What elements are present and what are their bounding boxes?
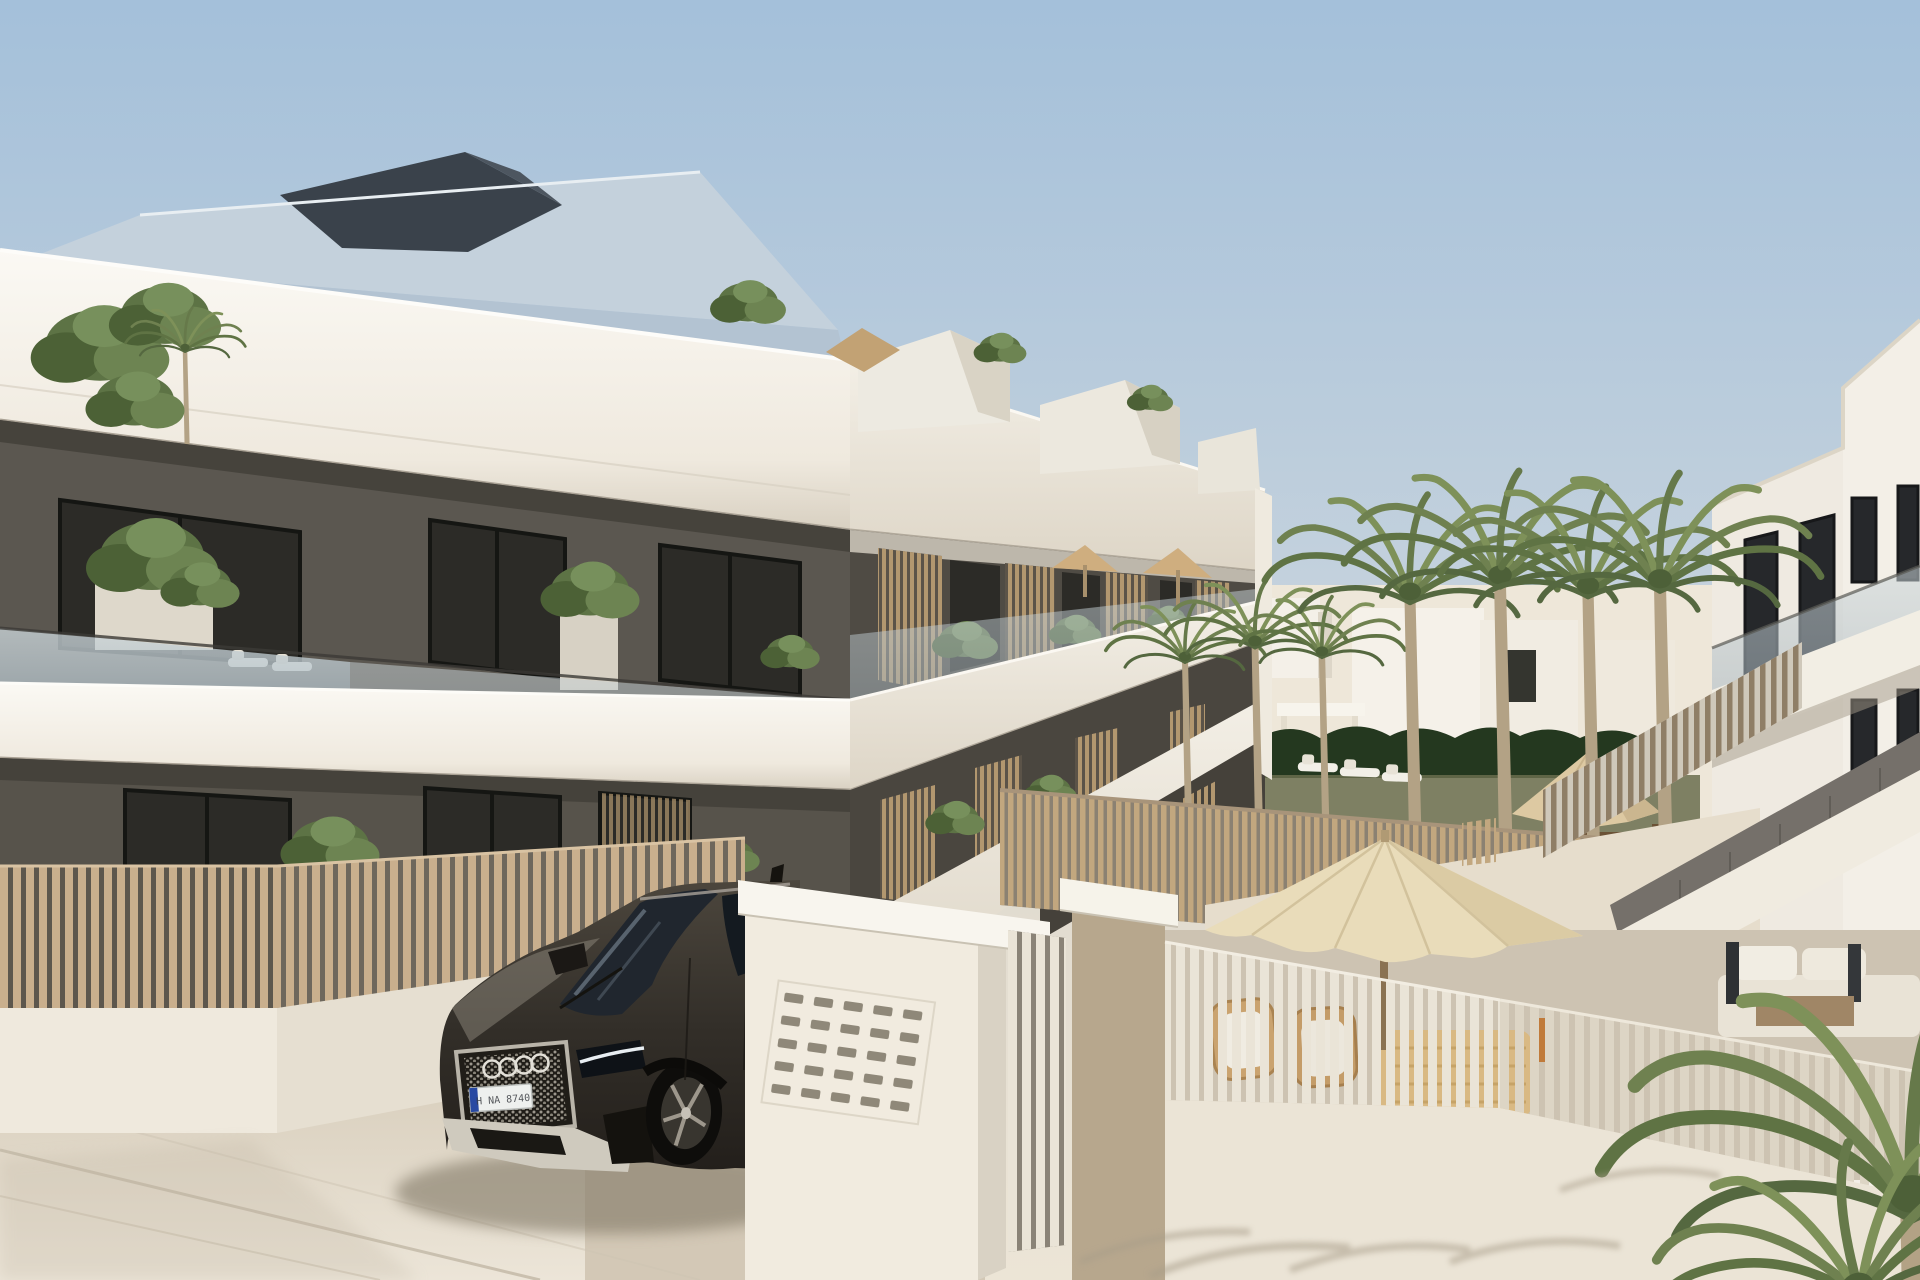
render-image: H NA 8740 bbox=[0, 0, 1920, 1280]
gate-pillar bbox=[1060, 878, 1178, 1280]
distant-window bbox=[1506, 650, 1536, 702]
pedestrian-gate bbox=[1008, 930, 1066, 1252]
entrance bbox=[738, 878, 1178, 1280]
mailbox-wall bbox=[738, 880, 1050, 1280]
license-plate: H NA 8740 bbox=[469, 1084, 533, 1112]
